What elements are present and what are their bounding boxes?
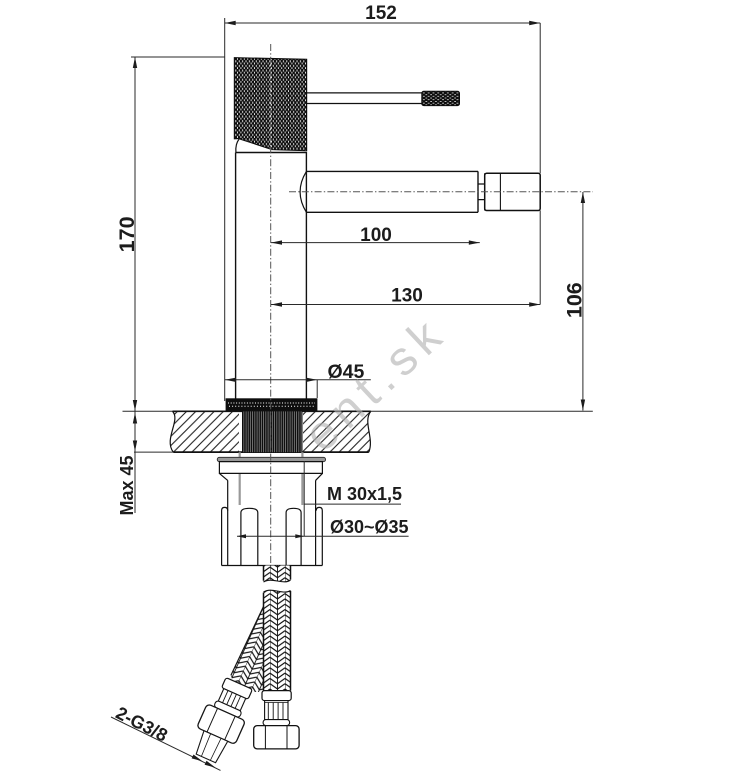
svg-text:M 30x1,5: M 30x1,5 bbox=[327, 484, 402, 504]
svg-text:130: 130 bbox=[391, 286, 423, 307]
svg-text:Max 45: Max 45 bbox=[117, 455, 137, 515]
svg-text:Ø30~Ø35: Ø30~Ø35 bbox=[330, 517, 409, 537]
svg-text:170: 170 bbox=[115, 216, 139, 252]
svg-text:152: 152 bbox=[365, 3, 397, 24]
svg-text:100: 100 bbox=[360, 225, 392, 246]
svg-text:106: 106 bbox=[562, 282, 586, 318]
